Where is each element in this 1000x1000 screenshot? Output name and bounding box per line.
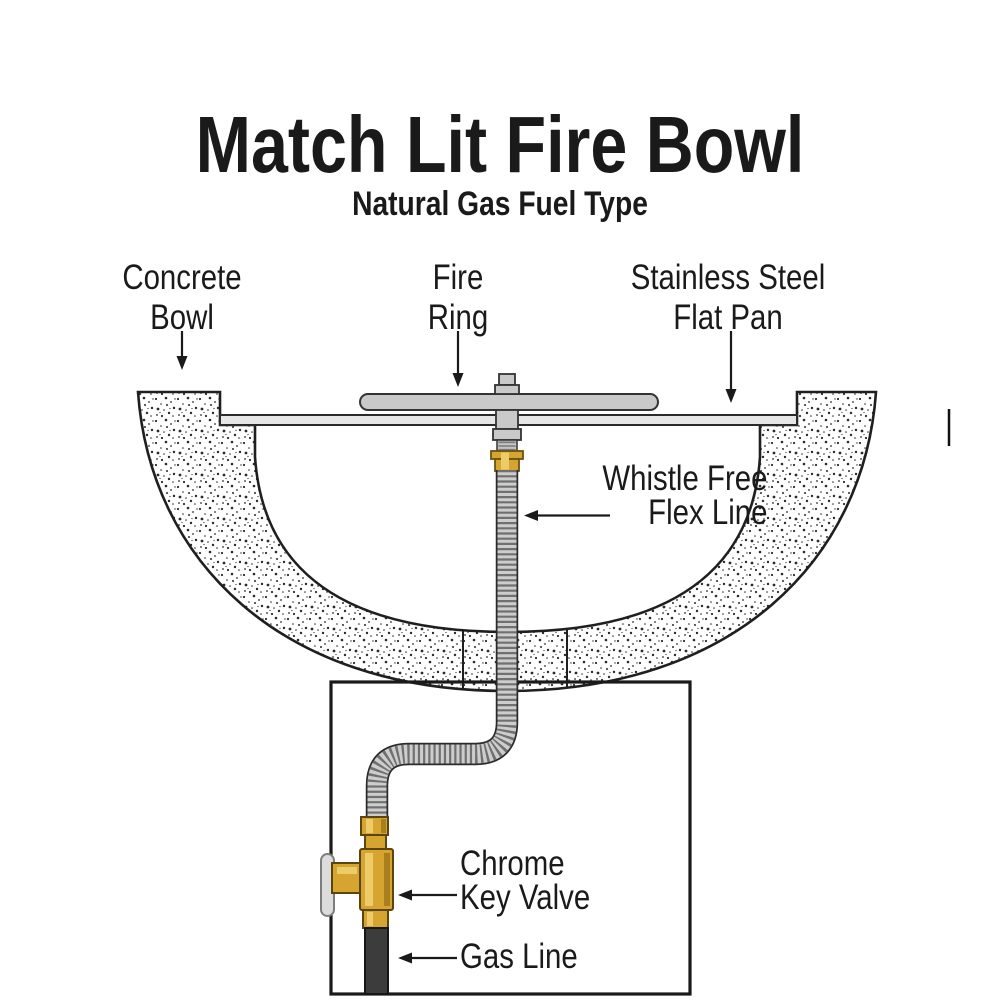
chrome-key-valve: [332, 817, 393, 928]
page-title: Match Lit Fire Bowl: [196, 103, 805, 187]
label-line: Gas Line: [460, 940, 578, 974]
label-line: Stainless Steel: [631, 258, 825, 298]
arrow-left-icon: [398, 953, 457, 964]
label-gas-line: Gas Line: [460, 940, 578, 974]
arrow-left-icon: [398, 890, 457, 901]
label-line: Bowl: [122, 298, 241, 338]
pan-brass-fitting: [491, 451, 523, 471]
label-chrome-key-valve: Chrome Key Valve: [460, 847, 590, 915]
hub-collar: [496, 410, 518, 429]
threaded-nipple: [497, 440, 517, 451]
label-whistle-free-flex-line: Whistle Free Flex Line: [602, 462, 767, 530]
fire-ring: [360, 394, 658, 410]
hub-cap: [499, 374, 515, 385]
label-fire-ring: Fire Ring: [428, 258, 488, 338]
arrow-down-icon: [453, 331, 464, 387]
fire-bowl-diagram-page: Match Lit Fire Bowl Natural Gas Fuel Typ…: [0, 0, 1000, 1000]
page-subtitle: Natural Gas Fuel Type: [352, 186, 648, 222]
arrow-down-icon: [726, 331, 737, 403]
label-stainless-flat-pan: Stainless Steel Flat Pan: [631, 258, 825, 338]
label-concrete-bowl: Concrete Bowl: [122, 258, 241, 338]
gas-line-pipe: [365, 928, 388, 994]
valve-bottom-hex: [363, 910, 388, 928]
hub-locknut: [493, 429, 521, 440]
label-line: Flex Line: [602, 496, 767, 530]
label-line: Flat Pan: [631, 298, 825, 338]
hub-flange: [495, 385, 519, 394]
label-line: Chrome: [460, 847, 590, 881]
label-line: Concrete: [122, 258, 241, 298]
label-line: Ring: [428, 298, 488, 338]
label-line: Whistle Free: [602, 462, 767, 496]
arrow-left-icon: [524, 510, 610, 521]
label-line: Fire: [428, 258, 488, 298]
label-line: Key Valve: [460, 881, 590, 915]
valve-collar: [365, 835, 386, 849]
